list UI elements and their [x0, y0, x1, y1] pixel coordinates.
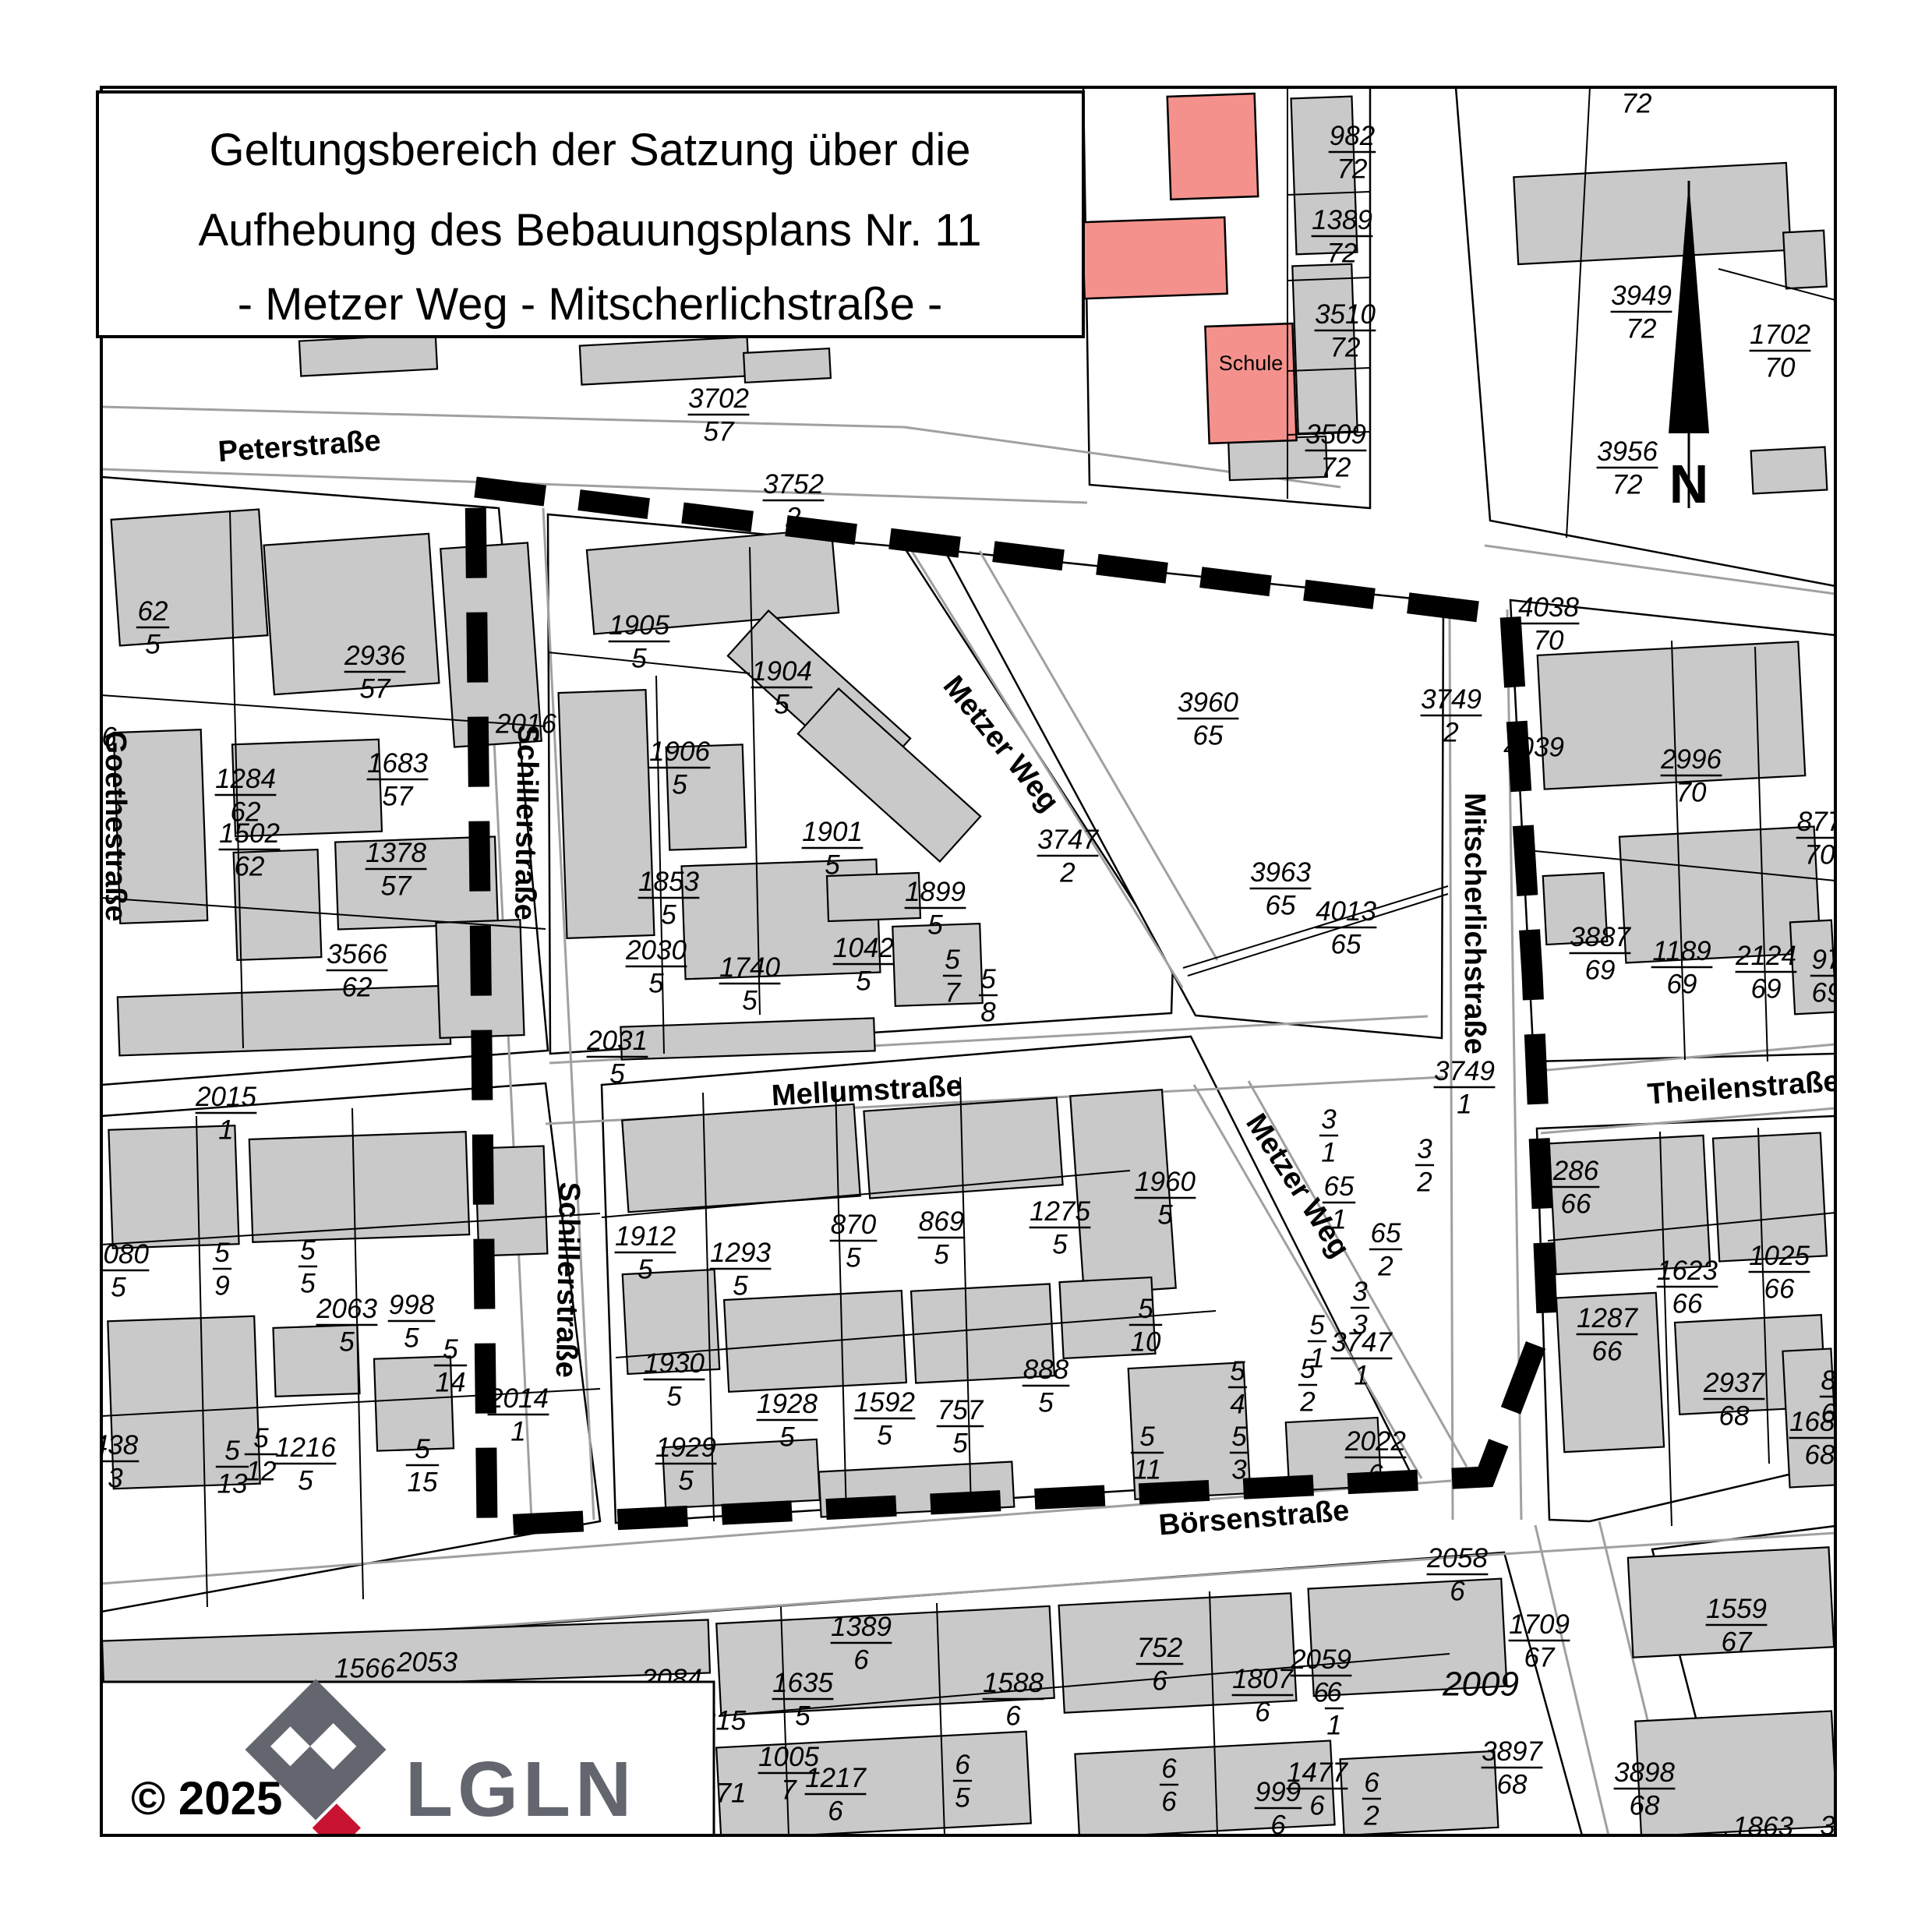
parcel-denominator: 68 [1497, 1769, 1528, 1800]
parcel-label: 65 [953, 1750, 972, 1813]
parcel-denominator: 62 [235, 851, 265, 881]
parcel-denominator: 6 [1161, 1786, 1177, 1817]
parcel-denominator: 6 [1255, 1697, 1270, 1727]
parcel-numerator: 1588 [983, 1668, 1044, 1698]
parcel-numerator: 438 [93, 1430, 139, 1460]
parcel-denominator: 5 [742, 985, 758, 1015]
parcel-numerator: 3566 [327, 939, 387, 970]
map-page: 9827213897235107235097272394972170270395… [0, 0, 1932, 1932]
building-footprint [249, 1132, 469, 1242]
building-footprint [1513, 163, 1790, 264]
parcel-label: 1566 [334, 1653, 395, 1683]
parcel-denominator: 9 [214, 1270, 229, 1301]
street-name-label: Schillerstraße [549, 1181, 585, 1378]
parcel-denominator: 7 [945, 977, 961, 1008]
parcel-denominator: 65 [1266, 890, 1296, 920]
parcel-denominator: 3 [1231, 1454, 1247, 1485]
parcel-denominator: 70 [1765, 352, 1796, 383]
parcel-denominator: 5 [733, 1270, 748, 1301]
parcel-numerator: 5 [214, 1238, 230, 1268]
parcel-numerator: 3747 [1037, 825, 1099, 855]
parcel-numerator: 65 [1324, 1171, 1355, 1202]
parcel-denominator: 15 [408, 1467, 438, 1497]
building-footprint [1751, 447, 1828, 494]
parcel-denominator: 5 [339, 1326, 355, 1357]
parcel-numerator: 6 [1161, 1754, 1177, 1784]
building-footprint [118, 986, 450, 1056]
parcel-numerator: 1899 [905, 877, 966, 907]
parcel-numerator: 4038 [1518, 592, 1579, 623]
title-line-2: Aufhebung des Bebauungsplans Nr. 11 [198, 205, 981, 256]
parcel-label: 52 [1298, 1354, 1317, 1417]
parcel-numerator: 1740 [719, 952, 780, 983]
parcel-denominator: 5 [846, 1242, 861, 1273]
parcel-numerator: 2124 [1735, 941, 1796, 971]
parcel-denominator: 11 [1133, 1454, 1161, 1485]
parcel-number: 1566 [334, 1653, 395, 1683]
logo-panel: © 2025 LGLN [100, 1679, 714, 1852]
parcel-number: 2009 [1442, 1665, 1519, 1703]
parcel-denominator: 72 [1626, 313, 1657, 344]
parcel-denominator: 62 [342, 972, 373, 1002]
building-footprint [111, 510, 268, 646]
parcel-denominator: 2 [785, 502, 800, 532]
parcel-label: 59 [213, 1238, 231, 1301]
parcel-denominator: 5 [298, 1465, 313, 1496]
parcel-denominator: 70 [1805, 839, 1835, 870]
parcel-numerator: 3 [1417, 1134, 1432, 1164]
parcel-label: 2009 [1442, 1665, 1519, 1703]
parcel-numerator: 5 [300, 1235, 316, 1266]
lgln-logo-text: LGLN [405, 1746, 636, 1833]
parcel-numerator: 3897 [1482, 1736, 1543, 1767]
parcel-numerator: 1189 [1652, 936, 1711, 966]
building-footprint [1783, 231, 1827, 289]
parcel-numerator: 5 [1309, 1310, 1325, 1340]
parcel-denominator: 2 [1377, 1251, 1393, 1281]
parcel-numerator: 2014 [487, 1383, 549, 1414]
parcel-numerator: 757 [938, 1395, 984, 1425]
parcel-numerator: 1929 [655, 1432, 716, 1463]
parcel-numerator: 3949 [1611, 281, 1672, 311]
parcel-denominator: 57 [360, 673, 391, 704]
parcel-label: 9769 [1810, 945, 1843, 1008]
parcel-numerator: 2015 [195, 1082, 256, 1112]
parcel-numerator: 5 [1231, 1422, 1247, 1452]
parcel-denominator: 68 [1719, 1400, 1750, 1431]
parcel-denominator: 72 [1612, 469, 1643, 500]
parcel-denominator: 1 [510, 1416, 525, 1446]
parcel-label: 32 [1415, 1134, 1434, 1197]
parcel-numerator: 1284 [215, 764, 276, 794]
parcel-numerator: 6 [1364, 1768, 1379, 1798]
parcel-denominator: 5 [952, 1428, 968, 1458]
parcel-numerator: 1683 [367, 748, 428, 779]
parcel-numerator: 1042 [833, 933, 894, 963]
parcel-denominator: 6 [1152, 1665, 1167, 1696]
parcel-denominator: 2 [1363, 1800, 1379, 1831]
parcel-numerator: 1502 [219, 818, 280, 849]
parcel-numerator: 870 [831, 1210, 877, 1240]
parcel-numerator: 1293 [710, 1238, 771, 1268]
parcel-denominator: 1 [218, 1114, 233, 1145]
parcel-numerator: 1275 [1030, 1196, 1090, 1227]
parcel-numerator: 982 [1330, 121, 1375, 151]
parcel-denominator: 66 [1561, 1189, 1591, 1219]
parcel-denominator: 68 [1630, 1790, 1660, 1821]
parcel-denominator: 5 [934, 1239, 949, 1270]
parcel-numerator: 1930 [644, 1348, 705, 1379]
parcel-numerator: 6 [1326, 1677, 1342, 1708]
parcel-denominator: 2 [1416, 1167, 1432, 1197]
parcel-numerator: 5 [980, 964, 996, 994]
parcel-numerator: 6 [955, 1750, 970, 1780]
title-line-1: Geltungsbereich der Satzung über die [210, 125, 971, 175]
parcel-numerator: 3752 [763, 469, 824, 500]
parcel-denominator: 70 [1534, 625, 1564, 655]
parcel-label: 55 [298, 1235, 317, 1298]
parcel-numerator: 1905 [609, 610, 669, 641]
parcel-numerator: 3898 [1614, 1757, 1675, 1788]
building-footprint [580, 337, 749, 384]
parcel-denominator: 8 [980, 997, 996, 1027]
parcel-denominator: 1 [1354, 1360, 1369, 1390]
parcel-denominator: 7 [781, 1775, 797, 1805]
parcel-numerator: 1287 [1577, 1303, 1638, 1333]
parcel-numerator: 1025 [1749, 1241, 1810, 1271]
parcel-denominator: 3 [108, 1463, 123, 1493]
parcel-label: 72 [1622, 88, 1652, 118]
parcel-numerator: 2937 [1703, 1368, 1765, 1398]
parcel-denominator: 5 [111, 1272, 126, 1302]
parcel-numerator: 3 [1321, 1104, 1337, 1135]
parcel-denominator: 6 [1368, 1459, 1383, 1489]
parcel-label: 57 [943, 945, 962, 1008]
parcel-number: 1863 [1732, 1811, 1793, 1842]
parcel-numerator: 5 [1300, 1354, 1316, 1384]
parcel-denominator: 5 [678, 1465, 694, 1496]
parcel-numerator: 2059 [1290, 1644, 1351, 1675]
parcel-numerator: 1216 [275, 1432, 336, 1463]
parcel-denominator: 65 [1193, 720, 1224, 751]
parcel-numerator: 2996 [1660, 744, 1722, 775]
parcel-numerator: 1912 [615, 1221, 676, 1252]
parcel-numerator: 1080 [88, 1239, 149, 1270]
parcel-denominator: 5 [609, 1058, 625, 1089]
title-box: Geltungsbereich der Satzung über die Auf… [97, 92, 1083, 337]
parcel-denominator: 1 [1457, 1089, 1471, 1119]
parcel-numerator: 5 [1138, 1294, 1153, 1324]
street-name-label: Schillerstraße [508, 724, 544, 920]
parcel-number: 2053 [396, 1647, 457, 1677]
parcel-denominator: 5 [672, 769, 687, 800]
parcel-denominator: 69 [1751, 973, 1782, 1004]
parcel-denominator: 5 [648, 968, 664, 998]
parcel-numerator: 2022 [1344, 1426, 1406, 1457]
parcel-label: 62 [1362, 1768, 1381, 1831]
parcel-denominator: 5 [1038, 1387, 1054, 1418]
parcel-numerator: 3 [1352, 1277, 1368, 1307]
parcel-numerator: 1592 [854, 1387, 915, 1418]
building-footprint [724, 1291, 906, 1392]
parcel-denominator: 5 [1052, 1229, 1068, 1259]
parcel-numerator: 62 [138, 596, 168, 627]
parcel-numerator: 5 [443, 1334, 458, 1365]
parcel-denominator: 5 [638, 1254, 653, 1284]
street-name-label: Goethestraße [99, 731, 132, 922]
parcel-numerator: 5 [415, 1434, 430, 1464]
parcel-denominator: 14 [436, 1367, 466, 1397]
parcel-denominator: 57 [704, 416, 735, 447]
parcel-numerator: 3510 [1315, 299, 1376, 330]
parcel-numerator: 1904 [751, 656, 812, 687]
parcel-numerator: 3747 [1331, 1327, 1393, 1358]
parcel-denominator: 4 [1230, 1389, 1245, 1419]
parcel-numerator: 2936 [344, 641, 405, 671]
parcel-denominator: 72 [1327, 238, 1358, 268]
parcel-numerator: 97 [1812, 945, 1843, 975]
parcel-numerator: 1960 [1135, 1167, 1196, 1197]
building-footprint [559, 690, 655, 938]
parcel-numerator: 2058 [1426, 1543, 1488, 1574]
school-building [1205, 323, 1296, 443]
parcel-numerator: 1686 [1789, 1407, 1850, 1437]
parcel-denominator: 69 [1812, 977, 1842, 1008]
parcel-number: 72 [1622, 88, 1652, 118]
parcel-numerator: 3509 [1305, 419, 1366, 450]
cadastral-map: 9827213897235107235097272394972170270395… [0, 0, 1932, 1932]
parcel-denominator: 72 [1330, 332, 1361, 362]
parcel-denominator: 5 [795, 1701, 811, 1731]
parcel-denominator: 1 [1321, 1137, 1336, 1167]
parcel-numerator: 998 [389, 1290, 435, 1320]
parcel-denominator: 5 [856, 966, 871, 996]
parcel-label: 4039 [1503, 732, 1564, 762]
parcel-denominator: 12 [246, 1456, 277, 1486]
parcel-numerator: 1901 [802, 817, 863, 847]
parcel-denominator: 66 [1672, 1288, 1703, 1319]
parcel-numerator: 3702 [688, 383, 749, 414]
parcel-denominator: 5 [1157, 1199, 1173, 1230]
parcel-label: 58 [979, 964, 998, 1027]
parcel-denominator: 72 [1337, 154, 1368, 184]
parcel-numerator: 3749 [1434, 1056, 1495, 1086]
parcel-numerator: 1389 [831, 1612, 892, 1642]
parcel-numerator: 1477 [1287, 1757, 1348, 1788]
parcel-denominator: 6 [1005, 1701, 1021, 1731]
copyright-text: © 2025 [131, 1772, 282, 1824]
school-label: Schule [1219, 351, 1284, 375]
parcel-denominator: 5 [404, 1323, 419, 1353]
parcel-numerator: 5 [1230, 1356, 1245, 1386]
parcel-label: 2053 [396, 1647, 457, 1677]
parcel-numerator: 3749 [1421, 684, 1482, 715]
parcel-number: 71 [716, 1778, 747, 1808]
parcel-numerator: 65 [1371, 1218, 1401, 1249]
compass-north-letter: N [1669, 454, 1709, 514]
parcel-denominator: 57 [383, 781, 414, 811]
parcel-denominator: 5 [631, 643, 647, 673]
parcel-denominator: 10 [1131, 1326, 1161, 1357]
parcel-numerator: 869 [919, 1206, 964, 1237]
parcel-denominator: 5 [779, 1422, 795, 1452]
parcel-denominator: 5 [661, 899, 676, 930]
parcel-denominator: 70 [1676, 777, 1707, 807]
parcel-numerator: 752 [1137, 1633, 1182, 1663]
school-building [1167, 94, 1259, 200]
parcel-numerator: 3963 [1250, 857, 1311, 888]
parcel-numerator: 5 [253, 1423, 269, 1453]
building-footprint [622, 1104, 860, 1213]
parcel-numerator: 1389 [1312, 205, 1372, 235]
parcel-denominator: 69 [1585, 955, 1616, 985]
parcel-denominator: 5 [877, 1420, 892, 1450]
parcel-numerator: 3887 [1570, 922, 1631, 952]
parcel-denominator: 67 [1722, 1626, 1753, 1657]
parcel-numerator: 1559 [1706, 1594, 1767, 1624]
parcel-numerator: 1635 [772, 1668, 833, 1698]
parcel-numerator: 3960 [1178, 687, 1238, 718]
parcel-denominator: 66 [1592, 1336, 1623, 1366]
parcel-label: 66 [1160, 1754, 1178, 1817]
building-footprint [299, 334, 437, 376]
parcel-numerator: 1702 [1750, 320, 1810, 350]
parcel-denominator: 6 [1309, 1790, 1325, 1821]
parcel-denominator: 68 [1805, 1439, 1835, 1470]
parcel-numerator: 2030 [625, 935, 687, 966]
parcel-denominator: 6 [1450, 1576, 1465, 1606]
parcel-denominator: 6 [853, 1644, 869, 1675]
parcel-denominator: 5 [927, 909, 943, 940]
parcel-label: 54 [1228, 1356, 1247, 1419]
parcel-numerator: 2063 [316, 1294, 377, 1324]
parcel-denominator: 5 [300, 1268, 316, 1298]
parcel-numerator: 2031 [586, 1026, 648, 1056]
parcel-numerator: 1709 [1509, 1609, 1570, 1640]
parcel-numerator: 5 [224, 1436, 240, 1466]
parcel-numerator: 1928 [757, 1389, 818, 1419]
parcel-denominator: 5 [145, 629, 161, 659]
parcel-denominator: 2 [1059, 857, 1075, 888]
parcel-number: 4039 [1503, 732, 1564, 762]
parcel-numerator: 4013 [1316, 896, 1376, 927]
parcel-denominator: 5 [774, 689, 789, 719]
parcel-label: 31 [1319, 1104, 1338, 1167]
parcel-denominator: 65 [1331, 929, 1362, 959]
parcel-numerator: 1906 [649, 736, 710, 767]
parcel-denominator: 67 [1524, 1642, 1556, 1672]
building-footprint [743, 348, 831, 383]
parcel-numerator: 5 [945, 945, 960, 975]
parcel-label: 61 [1325, 1677, 1344, 1740]
parcel-denominator: 57 [381, 871, 412, 901]
parcel-denominator: 5 [955, 1782, 970, 1813]
parcel-denominator: 72 [1321, 452, 1351, 482]
title-line-3: - Metzer Weg - Mitscherlichstraße - [238, 279, 943, 330]
school-building [1082, 217, 1227, 298]
parcel-numerator: 5 [1139, 1422, 1155, 1452]
parcel-denominator: 5 [825, 849, 840, 880]
parcel-denominator: 5 [666, 1381, 682, 1411]
parcel-denominator: 13 [217, 1468, 248, 1499]
street-name-label: Mitscherlichstraße [1458, 793, 1491, 1054]
parcel-label: 71 [716, 1778, 747, 1808]
parcel-denominator: 69 [1667, 969, 1697, 999]
parcel-numerator: 286 [1552, 1156, 1599, 1186]
parcel-numerator: 1807 [1232, 1664, 1294, 1694]
parcel-label: 53 [1230, 1422, 1249, 1485]
parcel-label: 1863 [1732, 1811, 1793, 1842]
parcel-numerator: 1853 [638, 867, 699, 897]
parcel-numerator: 3956 [1597, 436, 1658, 467]
parcel-numerator: 1623 [1657, 1256, 1718, 1286]
parcel-denominator: 2 [1299, 1386, 1315, 1417]
parcel-numerator: 1217 [805, 1763, 867, 1793]
parcel-denominator: 66 [1764, 1273, 1795, 1304]
parcel-numerator: 888 [1023, 1355, 1069, 1385]
parcel-numerator: 1378 [366, 838, 426, 868]
parcel-denominator: 2 [1443, 717, 1458, 747]
parcel-denominator: 6 [828, 1796, 843, 1826]
parcel-denominator: 1 [1326, 1710, 1341, 1740]
